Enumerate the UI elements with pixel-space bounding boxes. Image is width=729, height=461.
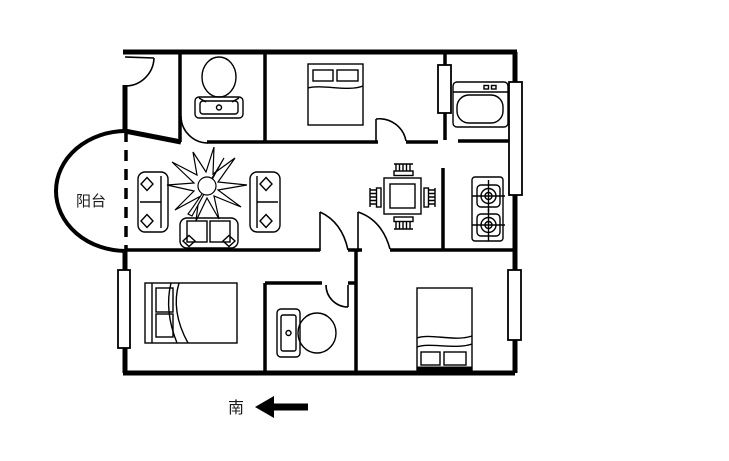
floor-plan-svg: 阳台 南 — [0, 0, 729, 461]
background — [0, 0, 729, 461]
entry-door-leaf — [125, 57, 154, 58]
floor-plan-image: 阳台 南 — [0, 0, 729, 461]
south-label: 南 — [228, 398, 244, 417]
window-east-lower — [508, 270, 521, 340]
window-east-upper — [509, 82, 522, 195]
window-utility — [438, 65, 451, 113]
window-west — [118, 270, 130, 348]
plant-pot — [198, 177, 216, 195]
balcony-label: 阳台 — [76, 192, 106, 210]
